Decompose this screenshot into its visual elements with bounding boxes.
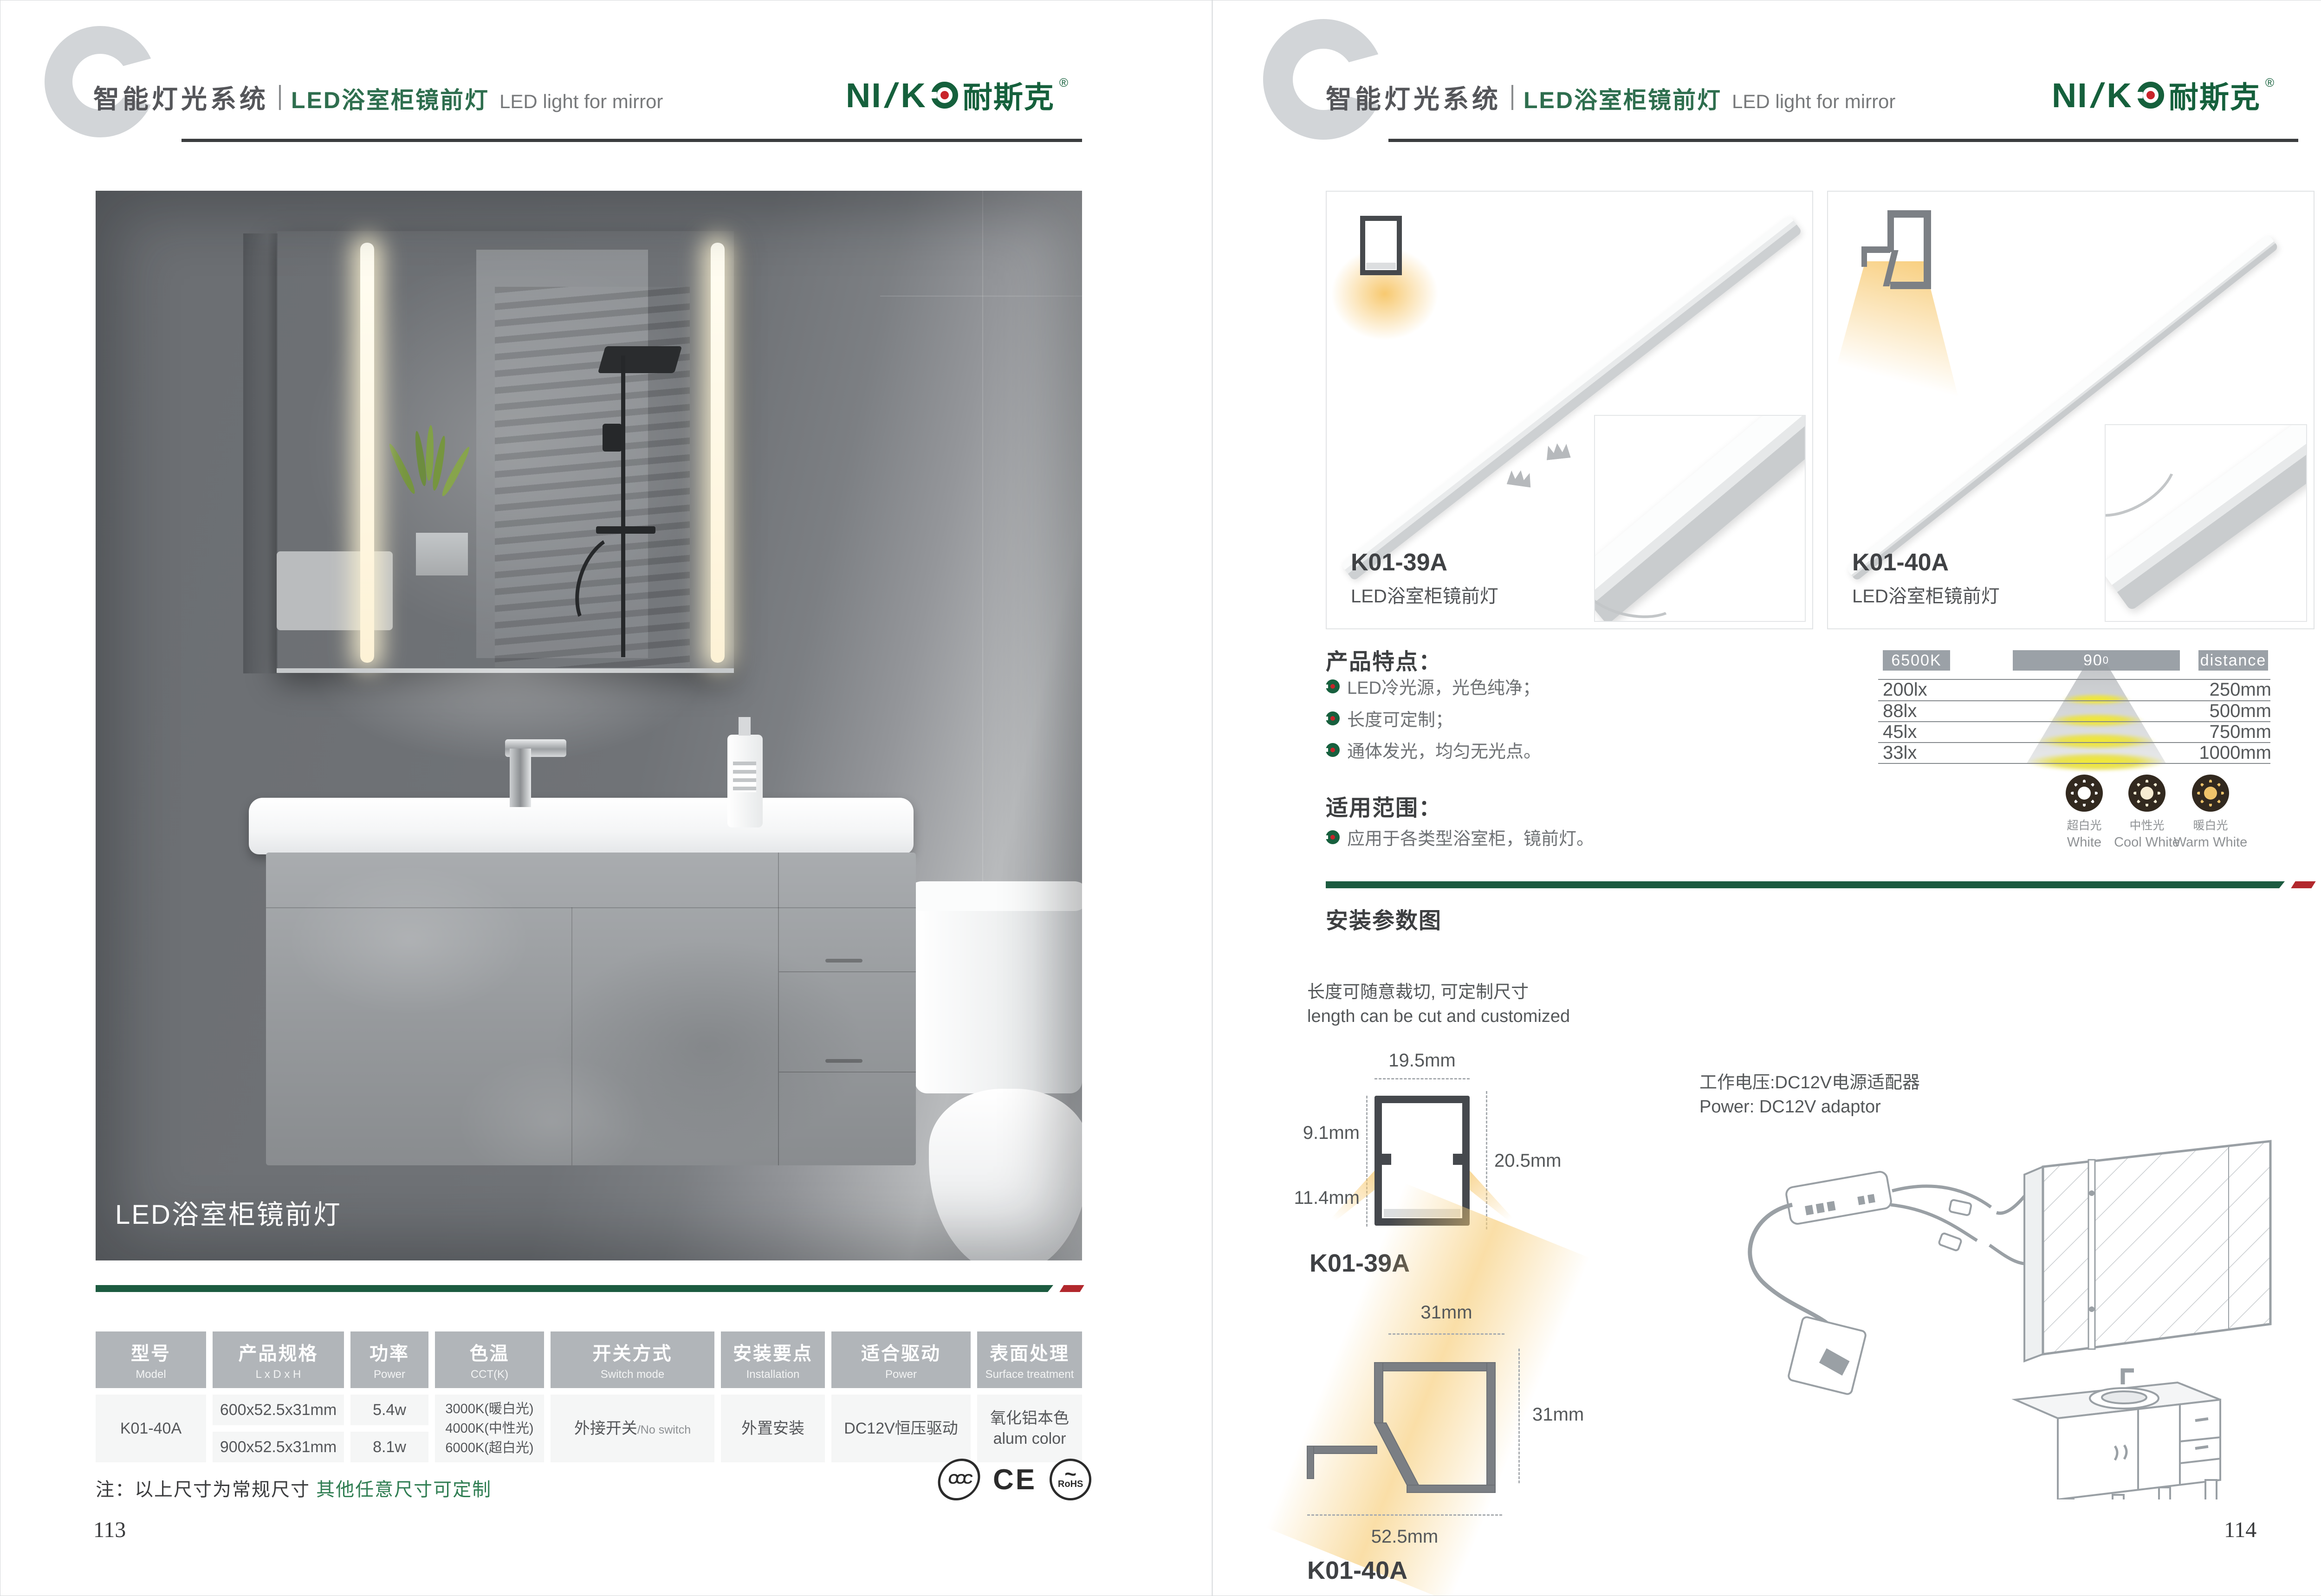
- detail-inset: [1594, 415, 1806, 622]
- power-5-4w: 5.4w: [350, 1395, 428, 1425]
- header-rule: [182, 139, 1082, 142]
- plant-leaf: [387, 442, 418, 496]
- corner-profile-icon: [1861, 210, 1931, 289]
- plant-leaf: [440, 445, 472, 498]
- registered-mark: ®: [2265, 76, 2274, 90]
- target-bullet-icon: [1326, 830, 1340, 844]
- col-surface: 表面处理Surface treatment: [977, 1331, 1082, 1388]
- cabinet-drawers: [778, 853, 916, 1165]
- shower-head: [598, 346, 682, 373]
- light-pool: [2036, 733, 2156, 750]
- cell-power: 5.4w 8.1w: [350, 1395, 428, 1462]
- mirror-cabinet-side: [243, 233, 278, 673]
- dim-top-31: 31mm: [1388, 1302, 1504, 1323]
- col-power: 功率Power: [350, 1331, 428, 1388]
- drawer-handle: [825, 959, 862, 963]
- cabinet-seam: [571, 907, 572, 1165]
- spec-600: 600x52.5x31mm: [213, 1395, 344, 1425]
- logo-latin-2: K: [2107, 76, 2132, 115]
- dim-line: [1374, 1078, 1470, 1079]
- header-divider: [279, 85, 281, 110]
- light-pool: [2062, 694, 2131, 705]
- rule-red: [1059, 1285, 1084, 1292]
- cell-spec: 600x52.5x31mm 900x52.5x31mm: [213, 1395, 344, 1462]
- logo-target-icon: [2137, 82, 2164, 109]
- dim-line: [1307, 1514, 1502, 1516]
- col-driver: 适合驱动Power: [831, 1331, 971, 1388]
- logo-latin-2: K: [901, 76, 926, 115]
- logo-latin: NI: [846, 76, 882, 115]
- page-right: 智能灯光系统 LED浴室柜镜前灯 LED light for mirror NI…: [1212, 0, 2321, 1596]
- faucet: [505, 739, 570, 804]
- drawer-seam: [779, 971, 916, 972]
- dim-20-5: 20.5mm: [1494, 1150, 1562, 1171]
- distance-value: 750mm: [2159, 722, 2271, 742]
- dim-top-19-5: 19.5mm: [1365, 1050, 1479, 1071]
- led-strip-right: [711, 243, 725, 663]
- rule-red: [2291, 881, 2315, 888]
- scope-title: 适用范围：: [1326, 789, 1442, 822]
- photometry-line: [1878, 763, 2270, 764]
- target-bullet-icon: [1326, 679, 1340, 693]
- product-title-cn: LED浴室柜镜前灯: [1524, 82, 1722, 115]
- logo-slash: /: [882, 76, 901, 115]
- product-title-en: LED light for mirror: [1732, 90, 1895, 113]
- product-title-cn: LED浴室柜镜前灯: [291, 82, 489, 115]
- col-install: 安装要点Installation: [721, 1331, 825, 1388]
- dim-line: [1388, 1333, 1504, 1335]
- distance-badge: distance: [2198, 650, 2268, 671]
- plant-leaf: [425, 425, 434, 481]
- section-rule: [96, 1285, 1082, 1292]
- cell-driver: DC12V恒压驱动: [831, 1395, 971, 1462]
- toilet-lid: [907, 881, 1082, 911]
- dim-9-1: 9.1mm: [1281, 1123, 1360, 1144]
- cell-model: K01-40A: [96, 1395, 206, 1462]
- dim-bottom-52-5: 52.5mm: [1342, 1526, 1467, 1547]
- distance-value: 1000mm: [2159, 743, 2271, 763]
- distance-value: 500mm: [2159, 701, 2271, 721]
- cell-switch: 外接开关/No switch: [551, 1395, 714, 1462]
- target-bullet-icon: [1326, 743, 1340, 757]
- faucet-body: [510, 749, 531, 807]
- cct-badge: 6500K: [1883, 650, 1950, 671]
- header-rule: [1388, 139, 2298, 142]
- soap-bottle: [727, 735, 763, 827]
- power-8-1w: 8.1w: [350, 1432, 428, 1462]
- system-title: 智能灯光系统: [93, 78, 269, 116]
- tile-grout-horizontal: [880, 296, 1082, 297]
- lux-value: 45lx: [1883, 722, 1985, 742]
- rule-green: [1326, 881, 2285, 888]
- col-spec: 产品规格L x D x H: [213, 1331, 344, 1388]
- mounting-clip: [1545, 441, 1570, 460]
- logo-target-icon: [931, 82, 958, 109]
- logo-cn: 耐斯克: [2169, 74, 2261, 116]
- light-pool: [2049, 713, 2144, 727]
- cut-note-cn: 长度可随意裁切, 可定制尺寸: [1307, 977, 1529, 1003]
- logo-cn: 耐斯克: [963, 74, 1055, 116]
- ce-cert-icon: CE: [993, 1463, 1037, 1496]
- page-left: 智能灯光系统 LED浴室柜镜前灯 LED light for mirror NI…: [0, 0, 1212, 1596]
- feature-item: 通体发光，均匀无光点。: [1326, 737, 1541, 762]
- dim-11-4: 11.4mm: [1271, 1188, 1360, 1208]
- install-title: 安装参数图: [1326, 902, 1442, 935]
- spec-table-row: K01-40A 600x52.5x31mm 900x52.5x31mm 5.4w…: [96, 1395, 1082, 1462]
- plant-pot: [416, 533, 468, 575]
- hand-shower: [603, 424, 622, 452]
- feature-item: 长度可定制；: [1326, 705, 1453, 731]
- lux-value: 200lx: [1883, 679, 1985, 700]
- mirror-reflection-shelf: [277, 551, 393, 630]
- ccc-cert-icon: CCC: [935, 1459, 983, 1500]
- installation-diagram: [1718, 1114, 2294, 1502]
- catalog-spread: 智能灯光系统 LED浴室柜镜前灯 LED light for mirror NI…: [0, 0, 2321, 1596]
- profile-section-icon: [1360, 216, 1402, 275]
- toilet-tank: [915, 889, 1082, 1093]
- power-note-cn: 工作电压:DC12V电源适配器: [1699, 1068, 1920, 1093]
- system-title: 智能灯光系统: [1326, 78, 1501, 116]
- cct-label: 暖白光Warm White: [2159, 816, 2262, 850]
- drawer-seam: [779, 1072, 916, 1073]
- cell-surface: 氧化铝本色 alum color: [977, 1395, 1082, 1462]
- cell-cct: 3000K(暖白光) 4000K(中性光) 6000K(超白光): [435, 1395, 544, 1462]
- product-card-k01-39a: K01-39A LED浴室柜镜前灯: [1326, 191, 1813, 629]
- size-note: 注：以上尺寸为常规尺寸 其他任意尺寸可定制: [96, 1474, 492, 1501]
- brand-logo: NI/K 耐斯克 ®: [846, 74, 1068, 116]
- logo-slash: /: [2088, 76, 2107, 115]
- rule-green: [96, 1285, 1053, 1292]
- cool-white-sun-icon: [2128, 775, 2165, 812]
- toilet-bowl: [929, 1089, 1082, 1260]
- mirror-cabinet: [277, 231, 734, 673]
- certification-icons: CCC CE RoHS: [938, 1459, 1091, 1500]
- vanity-cabinet: [266, 853, 916, 1165]
- header-divider: [1511, 85, 1513, 110]
- target-bullet-icon: [1326, 711, 1340, 725]
- col-switch: 开关方式Switch mode: [551, 1331, 714, 1388]
- registered-mark: ®: [1059, 76, 1068, 90]
- profile-cross-section-k01-40a: [1303, 1342, 1562, 1499]
- note-prefix: 注：以上尺寸为常规尺寸: [96, 1480, 316, 1500]
- lux-value: 33lx: [1883, 743, 1985, 763]
- warm-white-sun-icon: [2192, 775, 2229, 812]
- product-model: K01-39A: [1351, 549, 1447, 576]
- photo-caption: LED浴室柜镜前灯: [115, 1193, 342, 1232]
- product-card-k01-40a: K01-40A LED浴室柜镜前灯: [1827, 191, 2315, 629]
- bathroom-photo: LED浴室柜镜前灯: [96, 191, 1082, 1260]
- cut-note-en: length can be cut and customized: [1307, 1007, 1570, 1027]
- page-number-right: 114: [2224, 1517, 2256, 1543]
- dim-line: [1486, 1091, 1487, 1229]
- feature-item: LED冷光源，光色纯净；: [1326, 673, 1540, 699]
- dim-side-31: 31mm: [1532, 1404, 1584, 1425]
- spec-900: 900x52.5x31mm: [213, 1432, 344, 1462]
- product-title-en: LED light for mirror: [499, 90, 663, 113]
- light-pool: [2027, 752, 2166, 772]
- features-title: 产品特点：: [1326, 643, 1442, 676]
- distance-value: 250mm: [2159, 679, 2271, 700]
- dim-line: [1366, 1096, 1368, 1227]
- page-header: 智能灯光系统 LED浴室柜镜前灯 LED light for mirror: [1326, 78, 1895, 116]
- led-strip-left: [360, 243, 374, 663]
- page-header: 智能灯光系统 LED浴室柜镜前灯 LED light for mirror: [93, 78, 663, 116]
- section-rule: [1326, 881, 2314, 888]
- profile-model: K01-40A: [1307, 1556, 1407, 1585]
- drawer-handle: [825, 1059, 862, 1063]
- detail-inset: [2105, 424, 2307, 622]
- shower-valve: [596, 526, 655, 534]
- brand-logo: NI/K 耐斯克 ®: [2052, 74, 2274, 116]
- product-name: LED浴室柜镜前灯: [1351, 581, 1498, 608]
- rohs-cert-icon: RoHS: [1050, 1459, 1091, 1500]
- product-model: K01-40A: [1852, 549, 1949, 576]
- col-cct: 色温CCT(K): [435, 1331, 544, 1388]
- sink-basin: [249, 798, 914, 854]
- col-model: 型号Model: [96, 1331, 206, 1388]
- product-name: LED浴室柜镜前灯: [1852, 581, 2000, 608]
- mounting-clip: [1507, 468, 1533, 488]
- spec-table-header: 型号Model 产品规格L x D x H 功率Power 色温CCT(K) 开…: [96, 1331, 1082, 1388]
- page-number-left: 113: [93, 1517, 126, 1543]
- cell-install: 外置安装: [721, 1395, 825, 1462]
- logo-latin: NI: [2052, 76, 2088, 115]
- scope-item: 应用于各类型浴室柜，镜前灯。: [1326, 824, 1594, 850]
- lux-value: 88lx: [1883, 701, 1985, 721]
- note-highlight: 其他任意尺寸可定制: [316, 1480, 492, 1500]
- white-sun-icon: [2066, 775, 2103, 812]
